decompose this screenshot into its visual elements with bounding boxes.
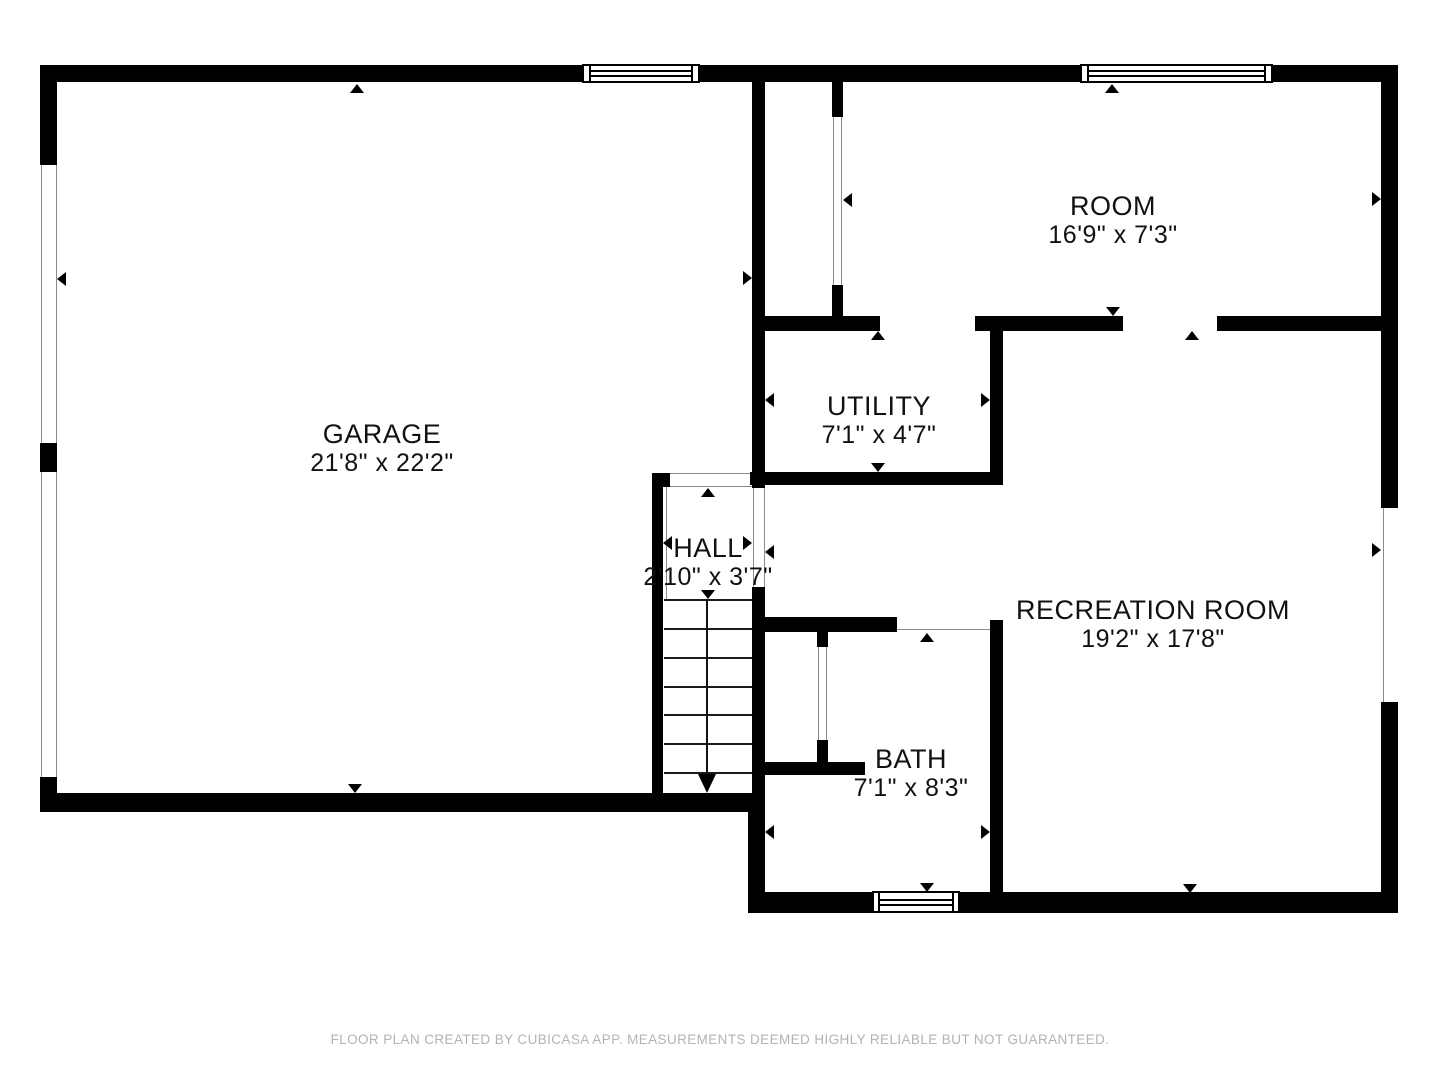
garage-door-opening-line bbox=[41, 165, 42, 443]
wall-hall-left bbox=[652, 473, 663, 812]
measure-arrow-bath-right-icon bbox=[981, 825, 990, 839]
measure-arrow-garage-top-icon bbox=[350, 84, 364, 93]
room-dimensions: 21'8" x 22'2" bbox=[310, 449, 454, 478]
recreation-opening-line bbox=[1383, 508, 1384, 702]
room-label-garage: GARAGE 21'8" x 22'2" bbox=[310, 420, 454, 478]
stair-tread-line bbox=[664, 686, 752, 688]
wall-room-left-upper bbox=[832, 82, 843, 117]
room-name: BATH bbox=[854, 745, 969, 774]
wall-bath-left bbox=[748, 810, 765, 900]
wall-exterior-bottom bbox=[748, 892, 1398, 913]
room-label-room: ROOM 16'9" x 7'3" bbox=[1048, 192, 1177, 250]
wall-exterior-right-upper bbox=[1381, 82, 1398, 508]
window bbox=[1080, 64, 1273, 83]
room-dimensions: 16'9" x 7'3" bbox=[1048, 221, 1177, 250]
wall-room-bottom-seg1 bbox=[755, 316, 880, 331]
measure-arrow-utility-right-icon bbox=[981, 393, 990, 407]
wall-recreation-left bbox=[990, 620, 1003, 913]
hall-door-opening-line bbox=[670, 486, 752, 487]
room-label-utility: UTILITY 7'1" x 4'7" bbox=[822, 392, 937, 450]
room-dimensions: 2'10" x 3'7" bbox=[643, 563, 772, 592]
window-frame-line bbox=[691, 66, 693, 81]
measure-arrow-bath-left-icon bbox=[765, 825, 774, 839]
window-pane-line bbox=[590, 75, 692, 77]
garage-door-opening-line bbox=[41, 472, 42, 777]
room-name: RECREATION ROOM bbox=[1016, 596, 1290, 625]
measure-arrow-hall-top-icon bbox=[701, 488, 715, 497]
floor-plan: GARAGE 21'8" x 22'2" ROOM 16'9" x 7'3" U… bbox=[0, 0, 1440, 1080]
wall-exterior-left-stub bbox=[40, 443, 57, 472]
bath-inner-door-opening-line bbox=[826, 647, 827, 740]
window bbox=[872, 891, 960, 913]
window-frame-line bbox=[589, 66, 591, 81]
window-frame-line bbox=[952, 893, 954, 911]
wall-bath-inner-lower bbox=[817, 740, 828, 763]
measure-arrow-room-bottom-icon bbox=[1106, 307, 1120, 316]
room-door-opening-line bbox=[833, 117, 834, 285]
room-label-hall: HALL 2'10" x 3'7" bbox=[643, 534, 772, 592]
room-dimensions: 19'2" x 17'8" bbox=[1016, 625, 1290, 654]
stair-tread-line bbox=[664, 743, 752, 745]
room-name: HALL bbox=[643, 534, 772, 563]
wall-garage-right-upper bbox=[752, 82, 765, 488]
wall-utility-right bbox=[990, 316, 1003, 485]
window-frame-line bbox=[1264, 66, 1266, 81]
wall-exterior-left-upper bbox=[40, 82, 57, 165]
measure-arrow-room-right-icon bbox=[1372, 192, 1381, 206]
wall-exterior-right-lower bbox=[1381, 702, 1398, 913]
window-pane-line bbox=[880, 899, 952, 901]
stair-tread-line bbox=[664, 657, 752, 659]
garage-door-opening-line bbox=[56, 165, 57, 443]
bath-door-opening-line bbox=[897, 629, 990, 630]
stair-direction-arrow-icon bbox=[698, 774, 716, 793]
measure-arrow-room-top-icon bbox=[1105, 84, 1119, 93]
room-door-opening-line bbox=[841, 117, 842, 285]
measure-arrow-recreation-bottom-icon bbox=[1183, 884, 1197, 893]
measure-arrow-utility-top-icon bbox=[871, 331, 885, 340]
wall-utility-bottom bbox=[750, 472, 1003, 485]
wall-room-bottom-seg3 bbox=[1217, 316, 1398, 331]
measure-arrow-garage-bottom-icon bbox=[348, 784, 362, 793]
room-name: ROOM bbox=[1048, 192, 1177, 221]
footer-disclaimer: FLOOR PLAN CREATED BY CUBICASA APP. MEAS… bbox=[0, 1032, 1440, 1047]
stair-direction-line bbox=[706, 599, 708, 775]
measure-arrow-garage-left-icon bbox=[57, 272, 66, 286]
measure-arrow-utility-bottom-icon bbox=[871, 463, 885, 472]
garage-door-opening-line bbox=[56, 472, 57, 777]
window-frame-line bbox=[878, 893, 880, 911]
window-pane-line bbox=[1088, 70, 1265, 72]
window-pane-line bbox=[590, 70, 692, 72]
window bbox=[582, 64, 700, 83]
measure-arrow-bath-top-icon bbox=[920, 633, 934, 642]
measure-arrow-recreation-right-icon bbox=[1372, 543, 1381, 557]
bath-inner-door-opening-line bbox=[818, 647, 819, 740]
measure-arrow-recreation-top-icon bbox=[1185, 331, 1199, 340]
wall-bath-inner-horizontal bbox=[765, 762, 865, 775]
measure-arrow-room-left-icon bbox=[843, 193, 852, 207]
room-label-recreation: RECREATION ROOM 19'2" x 17'8" bbox=[1016, 596, 1290, 654]
stair-tread-line bbox=[664, 628, 752, 630]
room-name: UTILITY bbox=[822, 392, 937, 421]
room-dimensions: 7'1" x 4'7" bbox=[822, 421, 937, 450]
measure-arrow-garage-right-icon bbox=[743, 271, 752, 285]
stair-tread-line bbox=[664, 714, 752, 716]
window-frame-line bbox=[1087, 66, 1089, 81]
measure-arrow-utility-left-icon bbox=[765, 393, 774, 407]
wall-bath-top bbox=[752, 617, 897, 632]
room-dimensions: 7'1" x 8'3" bbox=[854, 774, 969, 803]
room-label-bath: BATH 7'1" x 8'3" bbox=[854, 745, 969, 803]
measure-arrow-bath-bottom-icon bbox=[920, 883, 934, 892]
window-pane-line bbox=[880, 904, 952, 906]
room-name: GARAGE bbox=[310, 420, 454, 449]
window-pane-line bbox=[1088, 75, 1265, 77]
hall-door-opening-line bbox=[670, 473, 752, 474]
wall-bath-inner-upper bbox=[817, 632, 828, 647]
stair-tread-line bbox=[664, 599, 752, 601]
